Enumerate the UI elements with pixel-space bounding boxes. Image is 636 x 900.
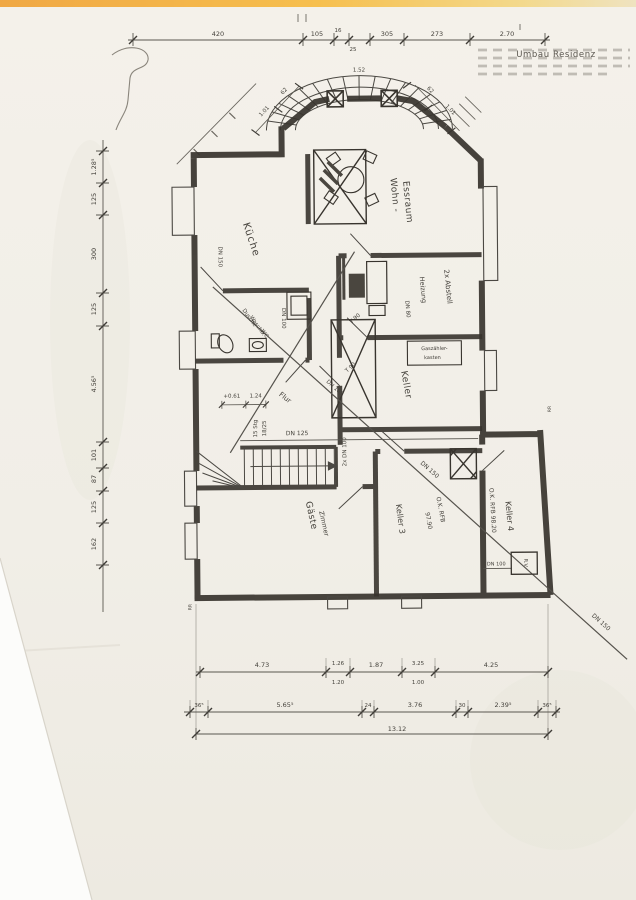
dim-bottom-b-2: 24	[365, 703, 372, 709]
dim-bottom-a-6: 4.25	[484, 661, 498, 669]
pipe-label-dn150-wall: DN 150	[216, 247, 222, 268]
stair-note-1: 15 Stg	[253, 420, 259, 438]
title-note-text: Umbau Residenz	[516, 50, 596, 60]
dim-left-4: 4.56⁵	[90, 375, 98, 392]
rv-label: R.V.	[522, 559, 528, 569]
dim-top-16: 16	[335, 28, 342, 34]
dim-left-7: 125	[90, 501, 98, 513]
dim-left-1: 125	[90, 193, 98, 205]
dim-bottom-b-4: 30	[459, 703, 466, 709]
dim-left-2: 300	[90, 248, 98, 260]
level-label: +0.61	[223, 394, 240, 400]
dim-top-105: 105	[311, 30, 323, 38]
dim-left-0: 1.28⁵	[90, 158, 98, 175]
dim-bay-2: 1.52	[353, 68, 365, 74]
dim-left-3: 125	[90, 303, 98, 315]
dim-bottom-b-5: 2.39⁵	[494, 701, 511, 709]
level-dim-label: 1.24	[250, 393, 263, 399]
top-edge-strip	[0, 0, 636, 7]
dim-bottom-b-6: 36⁵	[542, 702, 551, 709]
gas-box-label-2: kasten	[424, 355, 441, 361]
dim-top-420: 420	[212, 30, 224, 38]
dim-top-273: 273	[431, 30, 443, 38]
dim-bottom-a-5: 1.00	[412, 680, 425, 686]
gas-box-label-1: Gaszähler-	[421, 346, 448, 352]
mark-rr-left: RR	[188, 604, 194, 610]
dim-bottom-a-3: 1.87	[369, 661, 383, 669]
dim-bottom-b-0: 36⁵	[194, 702, 203, 709]
dim-left-8: 162	[90, 538, 98, 550]
dim-top-270: 2.70	[500, 30, 514, 38]
dim-top-25: 25	[350, 47, 357, 53]
pipe-label-dn100-annex: DN 100	[487, 561, 506, 567]
dim-total: 13.12	[388, 725, 407, 733]
pipe-label-dn100-2x: 2x DN 100	[342, 437, 348, 467]
pipe-label-dn100-bad: DN 100	[280, 308, 286, 329]
dim-bottom-a-4: 3.25	[412, 661, 425, 667]
dim-left-6: 87	[90, 475, 98, 483]
stair-note-2: 18/25	[262, 420, 268, 436]
pipe-label-dn125: DN 125	[286, 430, 309, 437]
dim-bottom-a-0: 4.73	[255, 661, 269, 669]
dim-top-305: 305	[381, 30, 393, 38]
mark-rr-right: RR	[547, 406, 553, 412]
dim-bottom-a-2: 1.20	[332, 680, 345, 686]
dim-bottom-b-3: 3.76	[408, 701, 422, 709]
scanned-floorplan-page: 420 105 16 25 305 273 2.70 Umbau Residen…	[0, 0, 636, 900]
floorplan-drawing: 420 105 16 25 305 273 2.70 Umbau Residen…	[0, 0, 636, 900]
dim-bottom-a-1: 1.26	[332, 661, 345, 667]
dim-left-5: 101	[90, 449, 98, 461]
dim-bottom-b-1: 5.65⁵	[276, 701, 293, 709]
